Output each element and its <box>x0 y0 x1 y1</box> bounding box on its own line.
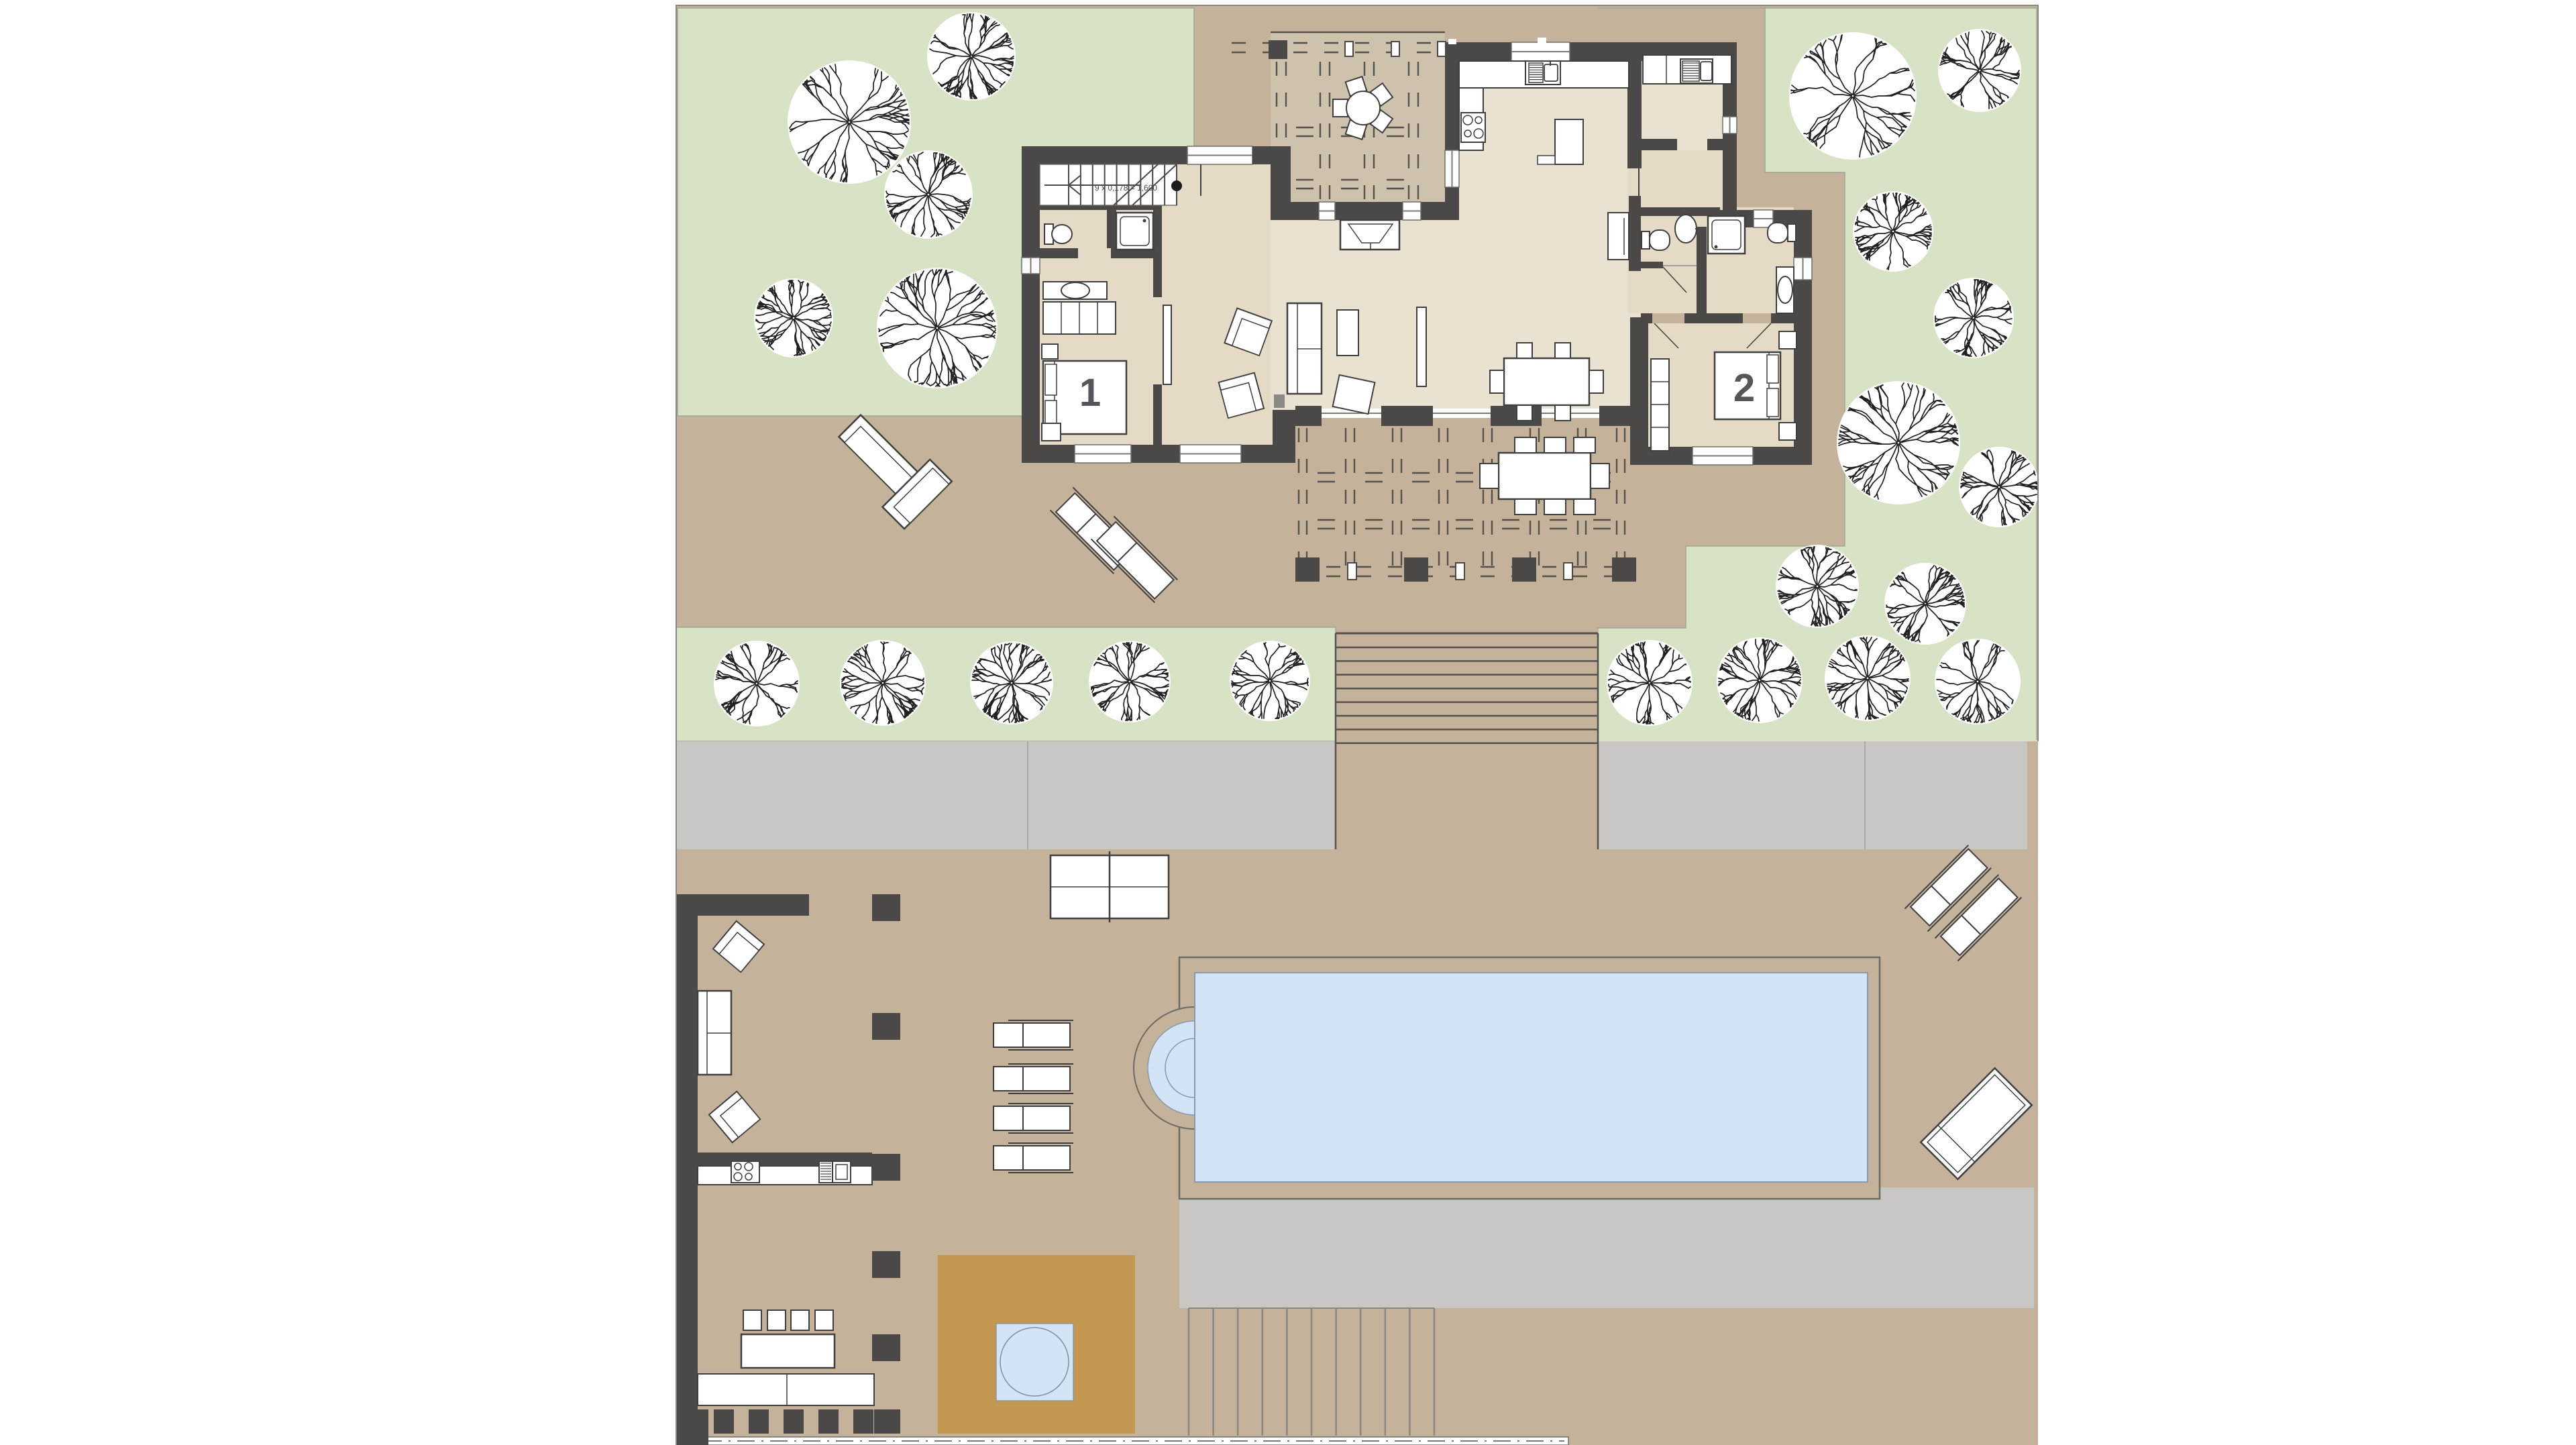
svg-text:9 x 0,178 = 1,600: 9 x 0,178 = 1,600 <box>1095 183 1157 193</box>
svg-text:1: 1 <box>1079 371 1101 415</box>
svg-text:2: 2 <box>1733 366 1755 410</box>
